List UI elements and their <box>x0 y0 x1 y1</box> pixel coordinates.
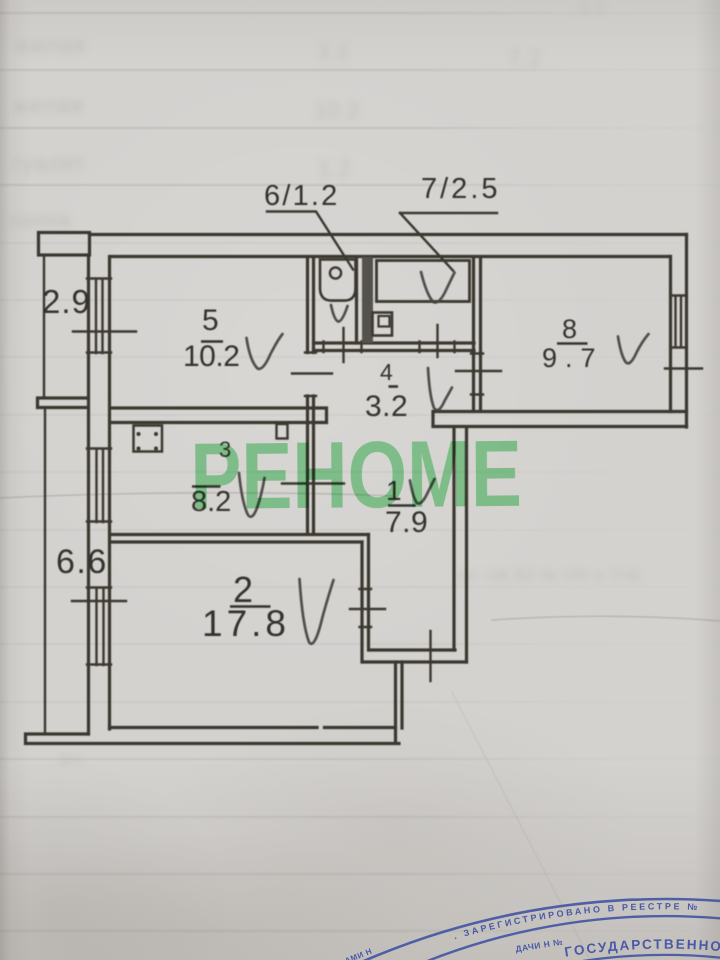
svg-text:ДАЧИ Н №: ДАЧИ Н № <box>515 937 564 954</box>
